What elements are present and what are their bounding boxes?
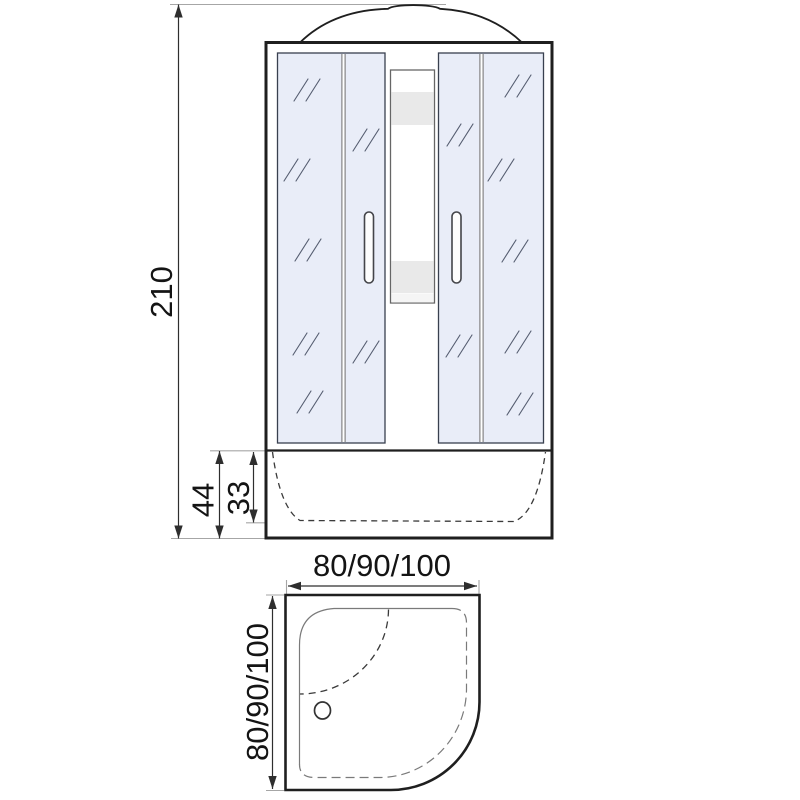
arrow-down-icon bbox=[215, 526, 223, 539]
shower-cabin-dimension-drawing: 210 44 33 bbox=[0, 0, 800, 800]
label-plan-width: 80/90/100 bbox=[313, 548, 451, 583]
label-plan-depth: 80/90/100 bbox=[240, 623, 275, 761]
front-view bbox=[266, 5, 552, 538]
arrow-down-icon bbox=[174, 526, 182, 539]
drain-hole bbox=[315, 702, 331, 719]
glass-doors-right bbox=[439, 53, 544, 443]
dome-roof bbox=[300, 5, 522, 42]
arrow-right-icon bbox=[464, 582, 477, 590]
column-base-strip bbox=[392, 294, 434, 303]
column-shelf-bottom bbox=[392, 261, 434, 293]
drawing-svg: 210 44 33 bbox=[0, 0, 800, 800]
label-tray-depth-33: 33 bbox=[221, 481, 256, 515]
label-height-210: 210 bbox=[144, 266, 179, 318]
dimension-plan-depth: 80/90/100 bbox=[240, 596, 277, 789]
arrow-up-icon bbox=[268, 596, 276, 609]
dimension-overall-height: 210 bbox=[144, 5, 183, 539]
door-handle-left bbox=[365, 212, 374, 283]
central-column-panel bbox=[391, 70, 435, 303]
arrow-up-icon bbox=[215, 451, 223, 464]
arrow-up-icon bbox=[174, 5, 182, 18]
column-shelf-top bbox=[392, 92, 434, 125]
glass-doors-left bbox=[278, 53, 386, 443]
dimension-tray-total-height: 44 bbox=[185, 451, 223, 539]
arrow-down-icon bbox=[268, 776, 276, 789]
arrow-up-icon bbox=[249, 452, 257, 465]
arrow-left-icon bbox=[288, 582, 301, 590]
dimension-tray-inner-depth: 33 bbox=[221, 452, 258, 523]
label-tray-height-44: 44 bbox=[185, 483, 220, 517]
dimension-plan-width: 80/90/100 bbox=[288, 548, 477, 590]
door-handle-right bbox=[452, 212, 461, 283]
plan-view: 80/90/100 80/90/100 bbox=[240, 548, 480, 791]
